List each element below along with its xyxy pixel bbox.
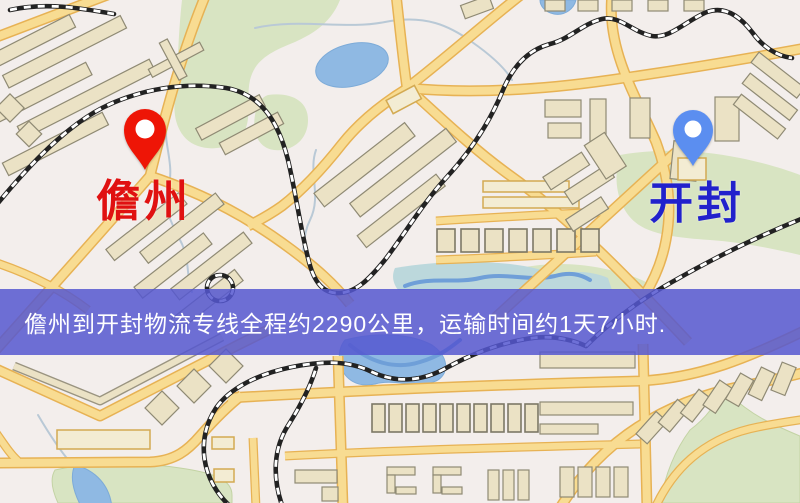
map-screenshot: 儋州 开封 儋州到开封物流专线全程约2290公里，运输时间约1天7小时. — [0, 0, 800, 503]
destination-pin[interactable] — [670, 106, 716, 168]
destination-place-label: 开封 — [649, 182, 745, 226]
blue-map-pin-icon — [670, 106, 716, 168]
origin-pin[interactable] — [121, 104, 169, 172]
red-map-pin-icon — [121, 104, 169, 172]
origin-place-label: 儋州 — [96, 180, 192, 224]
map-canvas[interactable] — [0, 0, 800, 503]
route-info-banner: 儋州到开封物流专线全程约2290公里，运输时间约1天7小时. — [0, 289, 800, 355]
route-info-text: 儋州到开封物流专线全程约2290公里，运输时间约1天7小时. — [0, 305, 666, 339]
